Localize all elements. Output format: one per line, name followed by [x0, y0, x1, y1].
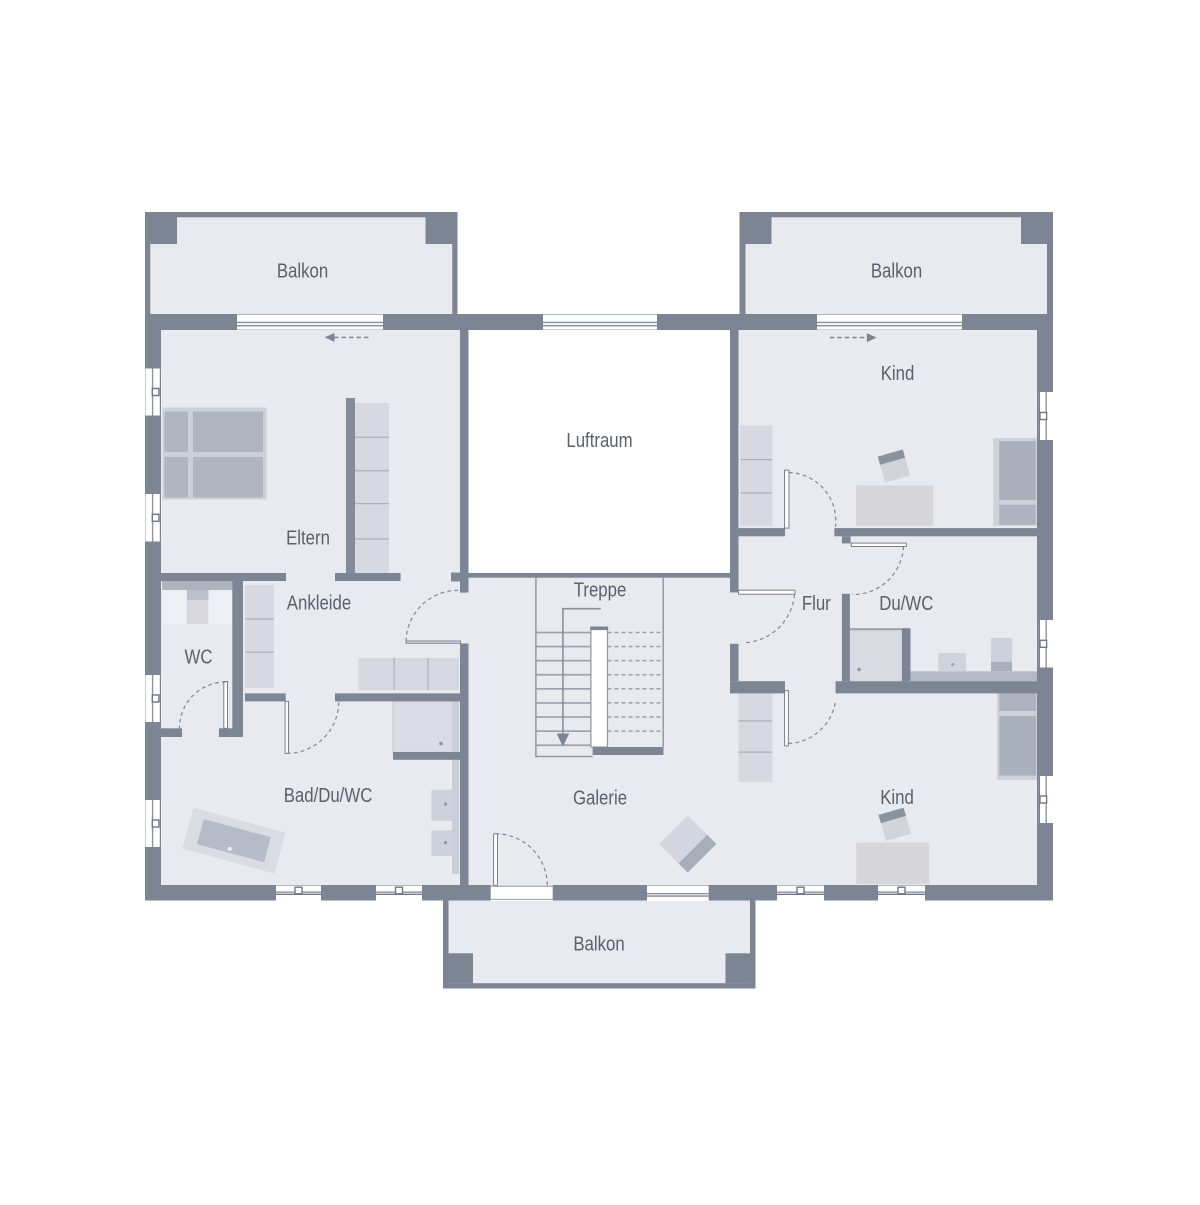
svg-text:Ankleide: Ankleide: [287, 591, 351, 614]
svg-text:Treppe: Treppe: [574, 578, 627, 601]
svg-text:Kind: Kind: [881, 361, 915, 384]
svg-text:Bad/Du/WC: Bad/Du/WC: [284, 784, 373, 807]
svg-text:Galerie: Galerie: [573, 786, 627, 809]
svg-text:Eltern: Eltern: [286, 526, 330, 549]
svg-text:Luftraum: Luftraum: [566, 429, 632, 452]
svg-text:Balkon: Balkon: [277, 259, 328, 282]
svg-text:Kind: Kind: [880, 785, 914, 808]
svg-text:Balkon: Balkon: [871, 259, 922, 282]
svg-text:Flur: Flur: [802, 591, 831, 614]
svg-text:Balkon: Balkon: [573, 932, 624, 955]
svg-text:Du/WC: Du/WC: [879, 591, 933, 614]
svg-text:WC: WC: [185, 645, 213, 668]
